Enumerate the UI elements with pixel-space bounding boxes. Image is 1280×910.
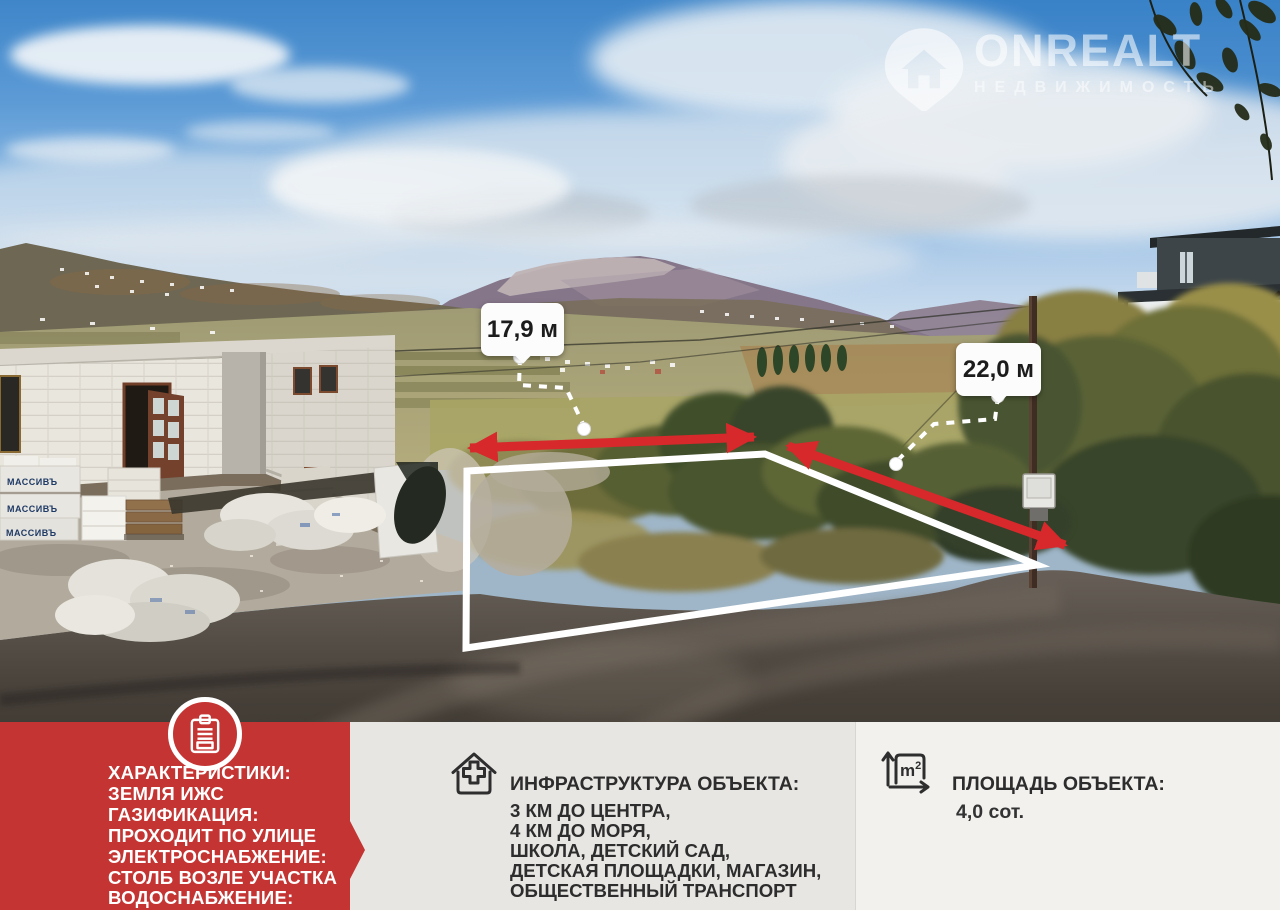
infrastructure-text: 3 КМ ДО ЦЕНТРА, 4 КМ ДО МОРЯ, ШКОЛА, ДЕТ… [510, 801, 821, 901]
map-pin-house-icon [884, 27, 964, 111]
characteristics-text: ХАРАКТЕРИСТИКИ: ЗЕМЛЯ ИЖС ГАЗИФИКАЦИЯ: П… [108, 763, 337, 909]
characteristics-line: ХАРАКТЕРИСТИКИ: [108, 763, 337, 784]
infrastructure-line: 4 КМ ДО МОРЯ, [510, 821, 821, 841]
area-title: ПЛОЩАДЬ ОБЪЕКТА: [952, 773, 1165, 796]
watermark-tagline: НЕДВИЖИМОСТЬ [974, 79, 1223, 97]
svg-text:m2: m2 [900, 760, 921, 780]
width-measure-bubble: 17,9 м [481, 303, 564, 356]
infrastructure-line: 3 КМ ДО ЦЕНТРА, [510, 801, 821, 821]
onrealt-watermark: ONREALT НЕДВИЖИМОСТЬ [884, 27, 1223, 111]
characteristics-panel-pointer [350, 821, 365, 879]
characteristics-line: ВОДОСНАБЖЕНИЕ: [108, 888, 337, 909]
blocks-brand-label: МАССИВЪ [7, 504, 58, 514]
blocks-brand-label: МАССИВЪ [7, 477, 58, 487]
infrastructure-panel: ИНФРАСТРУКТУРА ОБЪЕКТА: 3 КМ ДО ЦЕНТРА, … [350, 722, 855, 910]
characteristics-line: ЭЛЕКТРОСНАБЖЕНИЕ: [108, 847, 337, 868]
characteristics-line: ГАЗИФИКАЦИЯ: [108, 805, 337, 826]
real-estate-listing-image: МАССИВЪ МАССИВЪ МАССИВЪ [0, 0, 1280, 910]
infrastructure-title: ИНФРАСТРУКТУРА ОБЪЕКТА: [510, 773, 799, 796]
clipboard-icon [189, 714, 221, 754]
infrastructure-line: ДЕТСКАЯ ПЛОЩАДКИ, МАГАЗИН, [510, 861, 821, 881]
width-measure-label: 17,9 м [487, 316, 558, 344]
watermark-brand: ONREALT [974, 27, 1223, 75]
depth-measure-label: 22,0 м [963, 356, 1034, 384]
house-plus-icon [450, 751, 498, 797]
infrastructure-line: ОБЩЕСТВЕННЫЙ ТРАНСПОРТ [510, 881, 821, 901]
depth-measure-bubble: 22,0 м [956, 343, 1041, 396]
characteristics-line: ЗЕМЛЯ ИЖС [108, 784, 337, 805]
square-meters-icon: m2 [880, 744, 936, 796]
clipboard-badge [168, 697, 242, 771]
blocks-brand-label: МАССИВЪ [6, 528, 57, 538]
characteristics-line: ПРОХОДИТ ПО УЛИЦЕ [108, 826, 337, 847]
area-value: 4,0 сот. [956, 801, 1024, 824]
characteristics-line: СТОЛБ ВОЗЛЕ УЧАСТКА [108, 868, 337, 889]
infrastructure-line: ШКОЛА, ДЕТСКИЙ САД, [510, 841, 821, 861]
area-panel: m2 ПЛОЩАДЬ ОБЪЕКТА: 4,0 сот. [855, 722, 1280, 910]
